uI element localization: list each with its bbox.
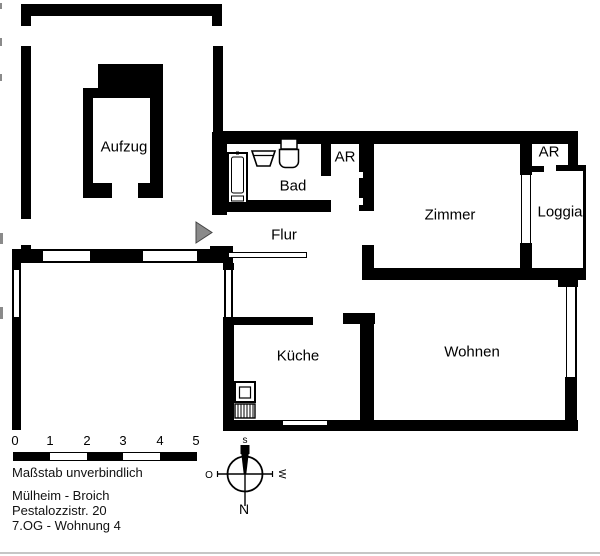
scale-tick: 3 — [119, 433, 126, 448]
wall-parapet-stub-left — [21, 16, 31, 26]
door-post-notch — [359, 172, 363, 178]
compass-label-right: W — [276, 469, 287, 479]
wall-right-block — [558, 268, 578, 287]
wall-bad-bottom — [215, 200, 331, 212]
wall-zimmer-wohnen — [362, 268, 586, 280]
window-glazing — [566, 287, 568, 377]
wall-lobby-left-stub — [21, 245, 31, 249]
wall-parapet-top — [21, 4, 222, 16]
wall-parapet-stub-right — [212, 16, 222, 26]
wall-bottom — [223, 420, 578, 431]
wall-loggia-right-thin — [583, 170, 586, 271]
scan-artifact — [0, 307, 3, 319]
wall-ar2-bottom-stub — [532, 166, 544, 172]
wall-right-lower — [565, 377, 577, 431]
window — [143, 251, 197, 261]
door-post-notch — [359, 198, 363, 205]
compass: s O W N — [205, 435, 287, 517]
address-unit: 7.OG - Wohnung 4 — [12, 518, 121, 533]
room-label-loggia: Loggia — [537, 205, 582, 220]
address-city: Mülheim - Broich — [12, 488, 121, 503]
scale-tick: 1 — [46, 433, 53, 448]
scan-artifact — [0, 233, 3, 244]
floor-plan: s O W N Aufzug Bad AR Zimmer AR Loggia F… — [0, 0, 600, 556]
room-label-ar1: AR — [335, 150, 356, 165]
scale-note: Maßstab unverbindlich — [12, 465, 143, 480]
kitchen-sink-icon — [235, 382, 255, 418]
scale-bar — [13, 452, 197, 461]
room-label-zimmer: Zimmer — [425, 208, 476, 223]
window-glazing — [521, 175, 523, 243]
bathtub-icon — [228, 153, 247, 203]
address-street: Pestalozzistr. 20 — [12, 503, 121, 518]
wall-lobby-left — [21, 46, 31, 219]
window-glazing — [530, 175, 532, 243]
entrance-door-leaf — [228, 252, 307, 258]
scan-artifact — [0, 38, 2, 46]
window-glazing — [12, 270, 14, 317]
scale-tick: 5 — [192, 433, 199, 448]
room-label-bad: Bad — [280, 179, 307, 194]
compass-needle — [241, 451, 249, 474]
window-glazing — [575, 287, 577, 377]
wall-kueche-top — [233, 317, 313, 325]
room-label-ar2: AR — [539, 145, 560, 160]
scan-edge-line — [0, 552, 600, 554]
compass-label-bottom: N — [239, 501, 249, 517]
wall-apartment-left-upper — [213, 46, 223, 132]
compass-label-top: s — [243, 435, 248, 446]
scan-artifact — [0, 74, 2, 81]
scale-tick: 4 — [156, 433, 163, 448]
wall-elevator-left — [83, 88, 93, 198]
window-glazing — [224, 270, 226, 317]
room-label-flur: Flur — [271, 228, 297, 243]
wall-bad-ar — [321, 144, 331, 176]
entrance-arrow-icon — [196, 222, 212, 243]
room-label-aufzug: Aufzug — [101, 140, 148, 155]
scale-tick: 0 — [11, 433, 18, 448]
room-label-kueche: Küche — [277, 349, 320, 364]
wall-elevator-door-post-left — [93, 183, 112, 198]
room-label-wohnen: Wohnen — [444, 345, 500, 360]
window-glazing — [19, 270, 21, 317]
wall-top — [215, 131, 578, 144]
washbasin-icon — [252, 151, 275, 166]
wall-kueche-wohnen — [360, 313, 374, 420]
scan-artifact — [0, 3, 2, 9]
compass-label-left: O — [205, 470, 213, 481]
wall-zimmer-left-piece — [362, 245, 374, 270]
wall-kueche-top-stub — [343, 313, 375, 324]
wall-elevator-door-post-right — [138, 183, 150, 198]
wall-loggia-top — [556, 165, 586, 171]
wall-ar2-right — [568, 133, 578, 166]
wall-elevator-right — [150, 88, 163, 198]
window-glazing — [231, 270, 233, 317]
window — [43, 251, 90, 261]
window — [282, 420, 328, 426]
scale-tick: 2 — [83, 433, 90, 448]
